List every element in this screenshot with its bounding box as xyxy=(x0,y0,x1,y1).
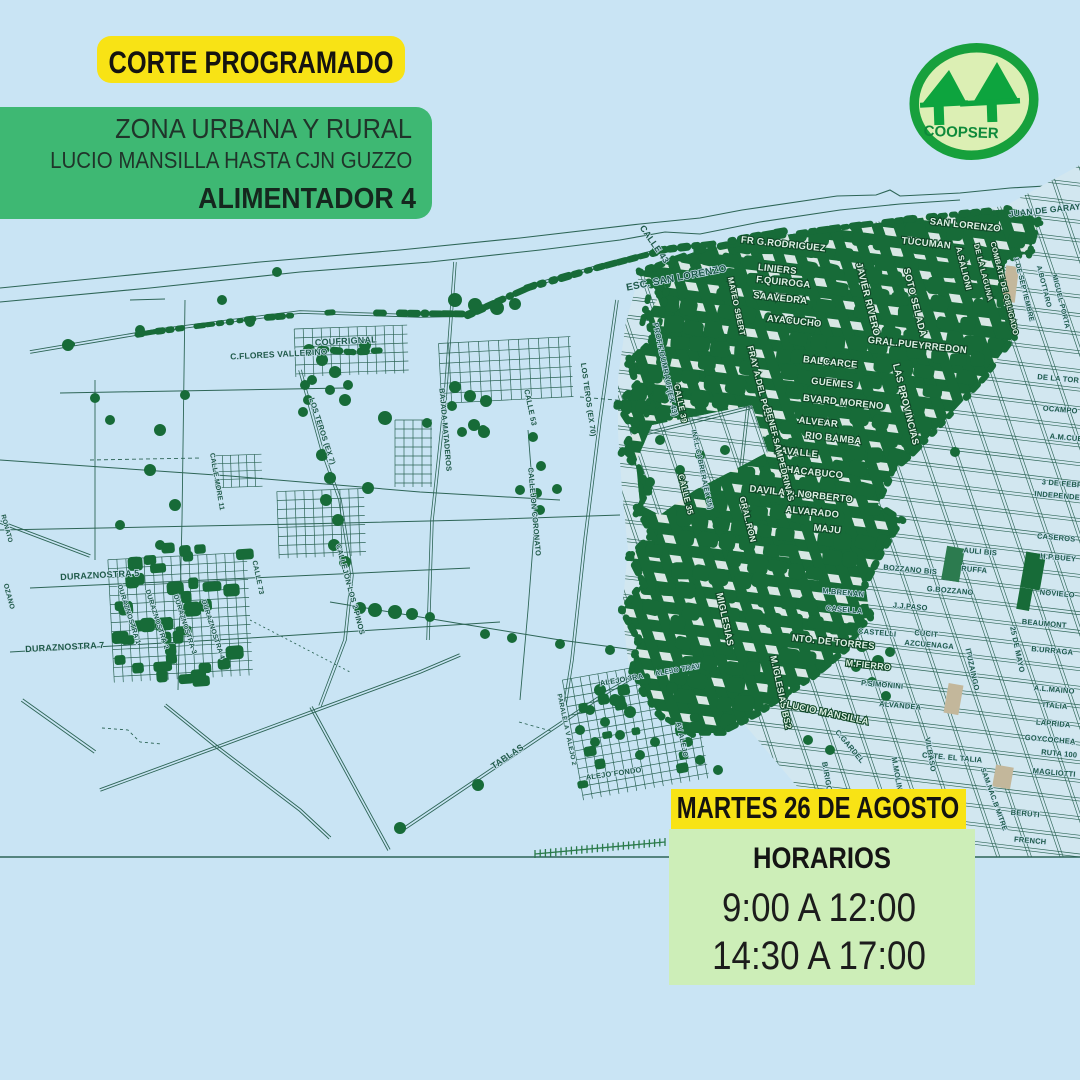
svg-text:COOPSER: COOPSER xyxy=(923,123,999,143)
